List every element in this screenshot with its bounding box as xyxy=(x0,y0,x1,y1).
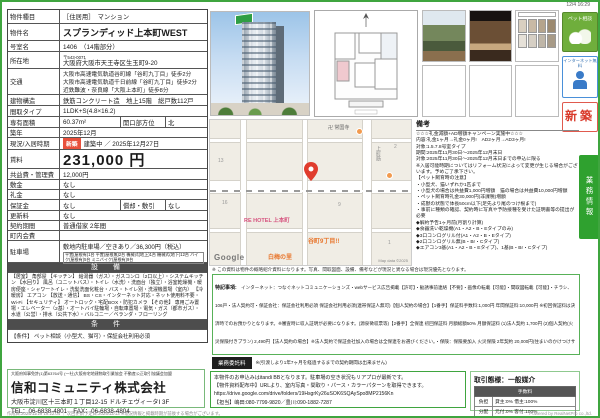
application-info-box: 本物件のお申込みはitandi BBとなります。駐車場の空き状況もリアプロが最新… xyxy=(210,371,466,408)
floor-area: 60.37m² xyxy=(60,117,120,127)
table-row: 建物構造鉄筋コンクリート造 地上15階 総戸数112戸 xyxy=(8,95,207,106)
transaction-type: 取引態様：一般媒介 xyxy=(474,374,576,384)
subway-line xyxy=(210,190,411,192)
property-flyer-page: 12/4 16:29 物件種目［住居用］ マンション 物件名スプランディッド上本… xyxy=(0,0,600,418)
remarks-section: 備考 ☆☆☆礼金減額+AD増額キャンペーン実施中☆☆☆ 内容:礼金1ヶ月→礼金0… xyxy=(416,119,579,267)
table-row: 負担貸主:0% 借主:100% xyxy=(475,397,576,407)
remarks-text: ☆☆☆礼金減額+AD増額キャンペーン実施中☆☆☆ 内容:礼金1ヶ月→礼金0ヶ月!… xyxy=(416,132,579,253)
map-pin-icon xyxy=(304,162,318,181)
temple-label: 卍 常国寺 xyxy=(328,124,349,131)
table-row: 物件名スプランディッド上本町WEST xyxy=(8,24,207,41)
rent-amount: 231,000 円 xyxy=(60,150,207,168)
table-row: 号室名1406 （14階部分） xyxy=(8,41,207,52)
contract-term: 普通借家 2年間 xyxy=(60,221,207,230)
key-money: なし xyxy=(60,190,207,199)
block-number: 9 xyxy=(338,202,341,208)
management-fee: 12,000円 xyxy=(60,169,207,179)
company-name: 信和コミュニティ株式会社 xyxy=(11,377,201,396)
remarks-title: 備考 xyxy=(416,119,579,131)
palette-header xyxy=(518,12,556,17)
table-row: 間取タイプ1LDK+S(4.8×16.2) xyxy=(8,106,207,117)
hotel-label: RE HOTEL 上本町 xyxy=(244,216,290,224)
poi-marker xyxy=(356,128,363,135)
table-row: 交通大阪市高速電気軌道谷町線「谷町九丁目」徒歩2分 大阪市高速電気軌道千日前線「… xyxy=(8,69,207,95)
table-row: 共益費・管理費12,000円 xyxy=(8,169,207,180)
street-trees xyxy=(211,103,309,115)
footer-note: 作成日:2025/11/29 19:22:04 ｜ 次回更新予定日:2025/1… xyxy=(7,411,223,417)
floorplan-drawing xyxy=(315,11,417,116)
direction: 北 xyxy=(166,117,194,127)
built-date: 2025年12月 xyxy=(60,128,207,137)
guarantee: なし xyxy=(60,200,120,210)
table-row: 更新料なし xyxy=(8,211,207,221)
entrance-photo xyxy=(422,10,466,62)
disclaimer-note: ※ この資料は物件の概略紹介資料になります。写真、間取図面、設備、備考などが現況… xyxy=(212,267,580,273)
block-number: 16 xyxy=(222,200,228,206)
property-spec-table: 物件種目［住居用］ マンション 物件名スプランディッド上本町WEST 号室名14… xyxy=(7,9,208,343)
tower-graphic xyxy=(242,22,276,114)
association-fee xyxy=(60,231,207,240)
equipment-text: 【居室】 角部屋 【キッチン】 給湯器（ガス）・ガスコンロ（2口以上）・システム… xyxy=(8,273,207,320)
table-row: 専有面積 60.37m² 開口部方位 北 xyxy=(8,117,207,128)
free-internet-badge: インターネット無料 xyxy=(562,56,598,98)
street-name-label: 上町筋 xyxy=(375,146,382,161)
floorplan-image xyxy=(314,10,418,117)
block-number: 2 xyxy=(394,144,397,150)
property-name: スプランディッド上本町WEST xyxy=(60,24,207,40)
company-info-box: 大阪府知事免許(1)第63764号 (一社)大阪府宅地建物取引業協会 不動産公正… xyxy=(7,369,205,408)
google-logo: Google xyxy=(214,253,245,262)
table-row: 駐車場 敷地内駐車場／空きあり／36,300円（税込） 平置(屋根有)1台 平置… xyxy=(8,241,207,263)
property-type: ［住居用］ マンション xyxy=(60,10,207,23)
parking: 敷地内駐車場／空きあり／36,300円（税込） 平置(屋根有)1台 平置(屋根無… xyxy=(60,241,207,262)
special-notes-section: 特記事項: インターネット：つなぐネットコミュニケーションズ・webサービス広告… xyxy=(212,274,580,355)
table-row: 保証金 なし 償却・敷引 なし xyxy=(8,200,207,211)
fee-table-header: 手数料 xyxy=(475,387,576,397)
parking-detail: 平置(屋根有)1台 平置(屋根無)2台 機械式(地上)1台 機械式(地下)12台… xyxy=(63,252,204,264)
map-road xyxy=(240,120,247,265)
empty-photo-slot xyxy=(469,65,513,117)
table-row: 所在地 〒543-0071大阪府大阪市天王寺区生玉町9-20 xyxy=(8,52,207,69)
renewal-fee: なし xyxy=(60,211,207,220)
area-label: 白梅の里 xyxy=(268,252,292,261)
map-road xyxy=(362,120,372,265)
commission-bar: 業務委託料 xyxy=(212,357,252,369)
table-row: 敷金なし xyxy=(8,180,207,190)
pet-ok-badge: ペット相談 xyxy=(562,12,598,52)
internet-person-icon xyxy=(573,71,587,91)
table-row: 契約期間普通借家 2年間 xyxy=(8,221,207,231)
access: 大阪市高速電気軌道谷町線「谷町九丁目」徒歩2分 大阪市高速電気軌道千日前線「谷町… xyxy=(60,69,207,94)
amortization: なし xyxy=(166,200,194,210)
block-number: 13 xyxy=(218,158,224,164)
empty-photo-slot xyxy=(515,65,559,117)
special-notes-title: 特記事項: xyxy=(215,285,237,291)
empty-photo-slot xyxy=(422,65,466,117)
transaction-type-box: 取引態様：一般媒介 手数料 負担貸主:0% 借主:100% 分配元付:0% 客付… xyxy=(470,371,580,411)
deposit: なし xyxy=(60,180,207,189)
table-row: 礼金なし xyxy=(8,190,207,200)
pets-icon xyxy=(569,26,591,44)
company-address: 大阪市淀川区十三本町１丁目12-15 ドルチェヴィータⅠ 3F xyxy=(11,397,201,406)
map-credit: Map data ©2025 xyxy=(378,258,408,263)
photo-grid xyxy=(422,10,559,117)
commission-note: ※(引渡しより1年7ヶ月を経過するまでの契約期間は出来ません) xyxy=(256,360,387,366)
address: 〒543-0071大阪府大阪市天王寺区生玉町9-20 xyxy=(60,52,207,68)
poi-marker xyxy=(386,172,393,179)
color-palette-chart xyxy=(515,10,559,62)
business-info-tab: 業務情報 xyxy=(579,155,599,239)
structure: 鉄筋コンクリート造 地上15階 総戸数112戸 xyxy=(60,95,207,105)
table-row: 築年2025年12月 xyxy=(8,128,207,138)
status: 新築建築中 ／ 2025年12月27日 xyxy=(60,138,207,149)
special-notes-text: インターネット：つなぐネットコミュニケーションズ・webサービス広告掲載【許可】… xyxy=(215,285,576,355)
tower-side xyxy=(276,26,284,114)
table-row: 物件種目［住居用］ マンション xyxy=(8,10,207,24)
room-number: 1406 （14階部分） xyxy=(60,41,207,51)
print-timestamp: 12/4 16:29 xyxy=(566,2,590,8)
conditions-section-bar: 条 件 xyxy=(8,320,207,330)
commission-row: 業務委託料 ※(引渡しより1年7ヶ月を経過するまでの契約期間は出来ません) xyxy=(212,357,580,369)
block-number: 1 xyxy=(388,240,391,246)
layout-type: 1LDK+S(4.8×16.2) xyxy=(60,106,207,116)
location-map: 卍 常国寺 上町筋 RE HOTEL 上本町 谷町9丁目!! 白梅の里 16 9… xyxy=(209,119,412,266)
building-render-image xyxy=(210,11,310,116)
new-build-badge: 新築 xyxy=(63,138,81,149)
conditions-text: 【条件】 ペット相談（小型犬、猫可）・保証会社利用必須 xyxy=(8,330,207,342)
station-label: 谷町9丁目!! xyxy=(308,236,339,245)
lobby-photo xyxy=(469,10,513,62)
table-row: 町内会費 xyxy=(8,231,207,241)
table-row: 賃料231,000 円 xyxy=(8,150,207,169)
powered-by: Powered by RealNetPro co.,ltd. xyxy=(529,411,592,416)
equipment-section-bar: 設 備 xyxy=(8,263,207,273)
